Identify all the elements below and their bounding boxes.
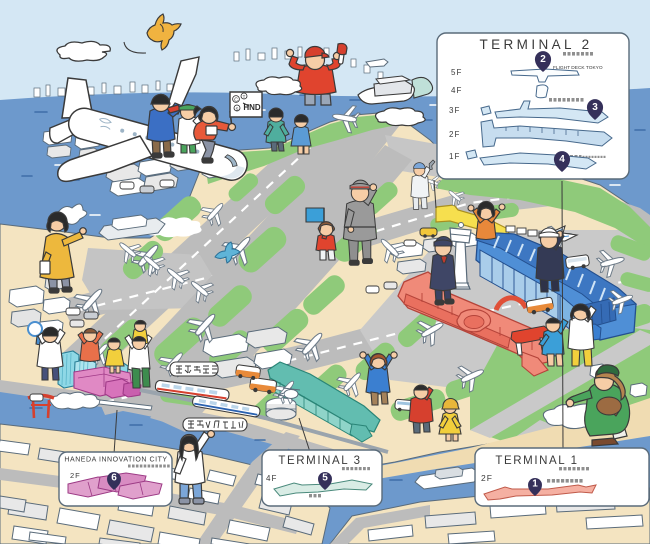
svg-text:6: 6 [111, 473, 117, 484]
svg-text:TERMINAL 1: TERMINAL 1 [495, 455, 578, 467]
svg-text:2F: 2F [481, 473, 493, 483]
svg-text:2F: 2F [449, 130, 460, 139]
svg-text:TERMINAL 3: TERMINAL 3 [278, 455, 361, 467]
svg-text:4: 4 [559, 154, 565, 165]
svg-text:3F: 3F [449, 106, 460, 115]
svg-text:5F: 5F [451, 68, 462, 77]
svg-text:1: 1 [532, 479, 538, 490]
svg-text:1F: 1F [449, 152, 460, 161]
svg-text:5: 5 [322, 473, 328, 484]
svg-text:2: 2 [540, 54, 546, 65]
svg-text:S: S [235, 107, 238, 112]
svg-text:HANEDA INNOVATION CITY: HANEDA INNOVATION CITY [64, 457, 167, 464]
svg-text:4F: 4F [266, 474, 277, 483]
svg-text:3: 3 [592, 102, 598, 113]
svg-text:C: C [234, 98, 238, 104]
svg-text:TERMINAL 2: TERMINAL 2 [479, 37, 592, 52]
svg-text:2F: 2F [70, 471, 81, 480]
svg-text:T: T [243, 95, 246, 100]
svg-text:4F: 4F [451, 86, 462, 95]
